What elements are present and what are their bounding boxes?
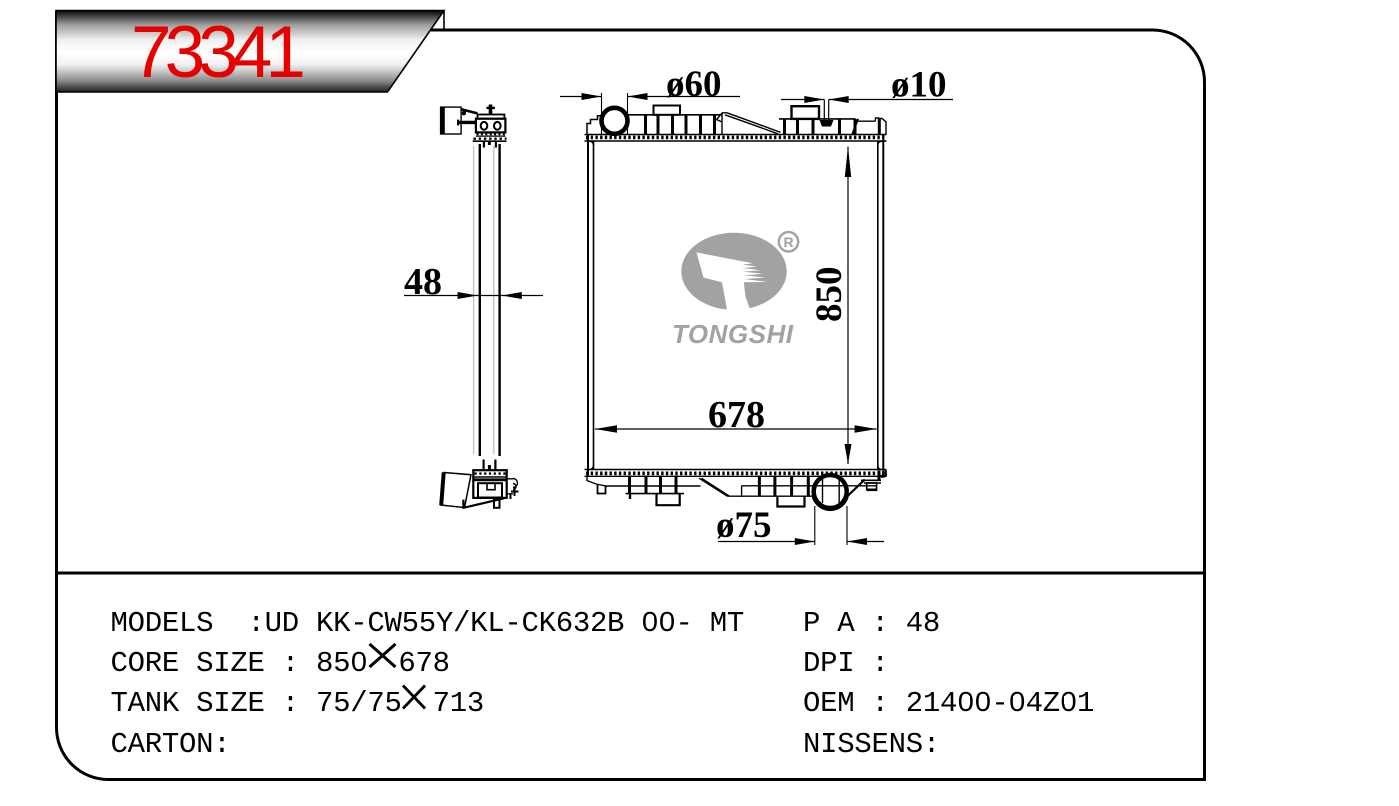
svg-text:73341: 73341 [131,12,303,93]
svg-text:ø75: ø75 [716,505,772,546]
svg-text:850: 850 [809,267,850,323]
svg-text:678: 678 [708,394,765,436]
svg-text:ø10: ø10 [891,65,947,106]
svg-text:48: 48 [404,261,442,303]
svg-text:TONGSHI: TONGSHI [672,319,794,349]
svg-text:R: R [783,234,793,250]
svg-text:ø60: ø60 [666,64,722,105]
